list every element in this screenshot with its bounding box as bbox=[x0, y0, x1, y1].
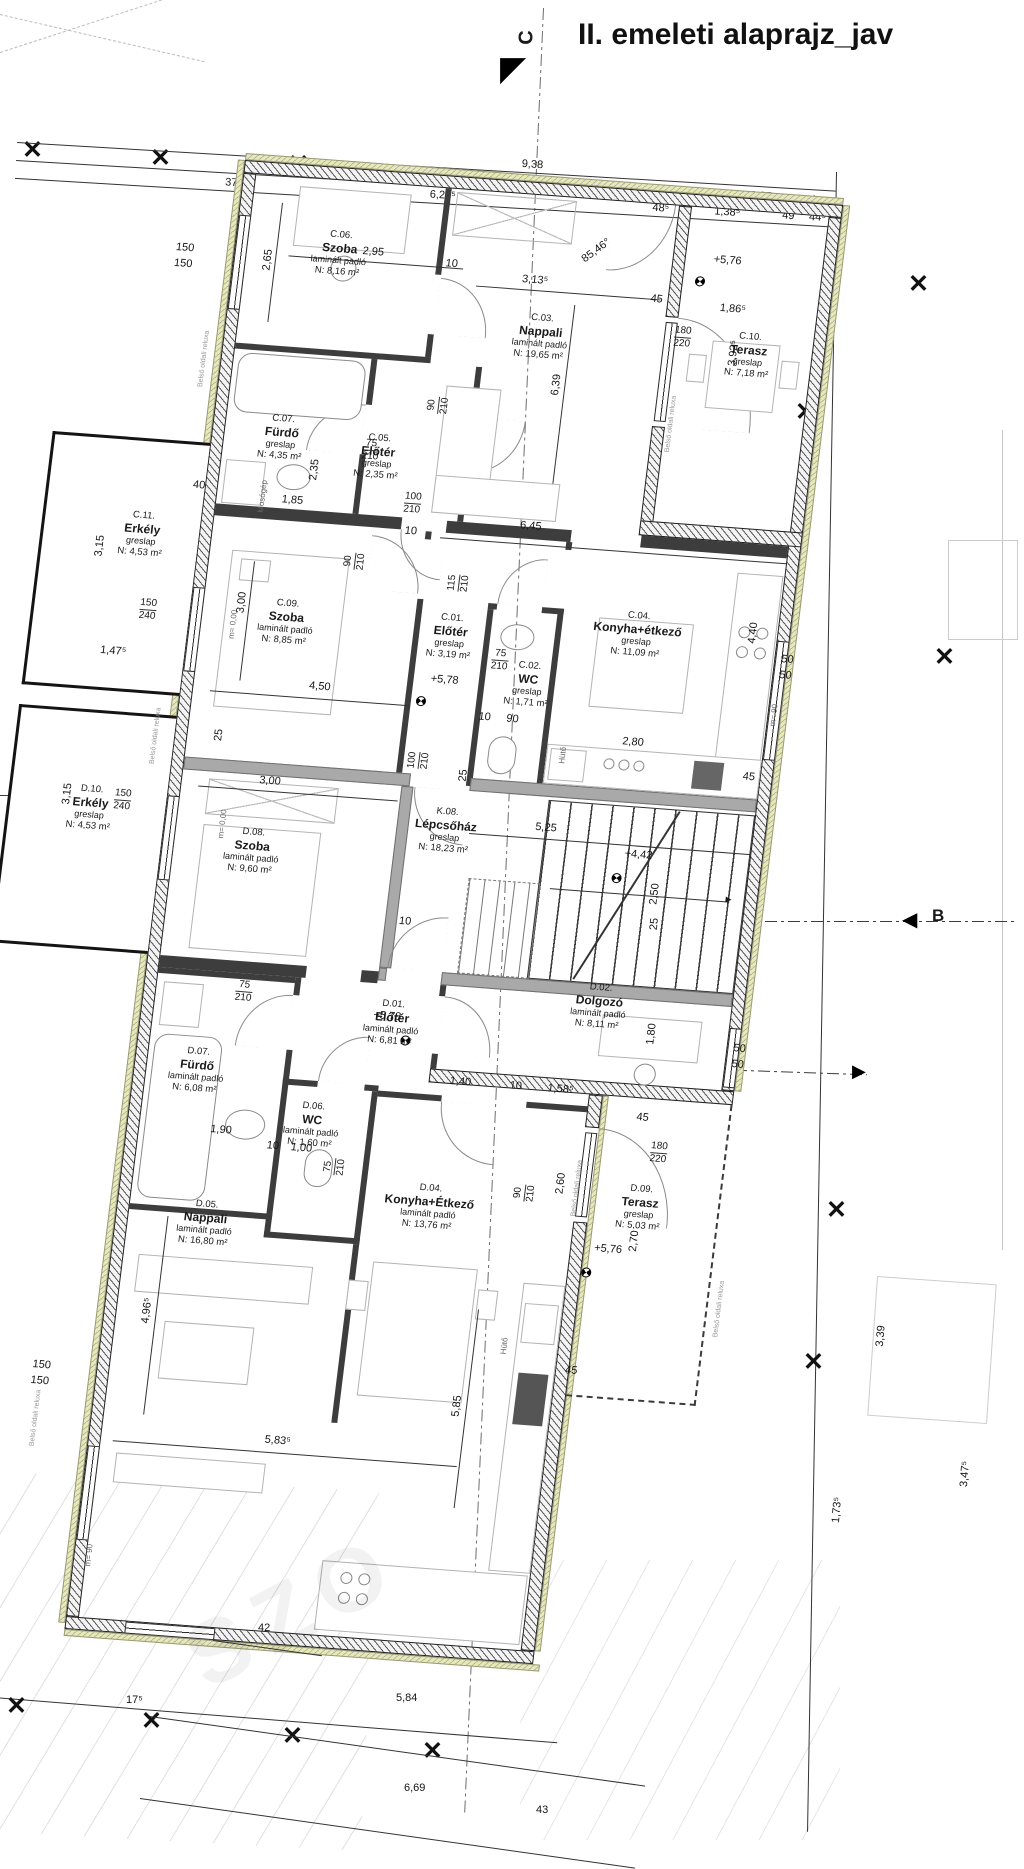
grid-cross-icon: ✕ bbox=[141, 1709, 162, 1734]
dim-label: 150 bbox=[175, 241, 195, 254]
dim-label: 1,40 bbox=[449, 1075, 472, 1089]
grid-cross-icon: ✕ bbox=[803, 1350, 824, 1375]
dim-label: 45 bbox=[636, 1111, 650, 1124]
dim-label: 25 bbox=[648, 917, 661, 930]
appliance-label: Hütő bbox=[499, 1337, 510, 1354]
door-dim: 150240 bbox=[113, 787, 133, 813]
dim-label: 17⁵ bbox=[126, 1694, 143, 1706]
dim-label: 1,73⁵ bbox=[830, 1497, 844, 1524]
dim-label: 1,90 bbox=[210, 1123, 233, 1137]
furniture-chair bbox=[475, 1289, 499, 1320]
floorplan-canvas: { "title": "II. emeleti alaprajz_jav", "… bbox=[0, 0, 1024, 1820]
room-label-d01: D.01.Előtér laminált padlóN: 6,81 m² bbox=[334, 995, 450, 1052]
level-label: +5,78 bbox=[430, 673, 459, 687]
dim-label: 1,47⁵ bbox=[100, 644, 127, 658]
furniture-sink bbox=[691, 761, 724, 791]
dim-label: 5,25 bbox=[535, 821, 558, 835]
wall-partition bbox=[360, 970, 378, 983]
wall-partition bbox=[264, 1231, 360, 1244]
dim-label: 90 bbox=[506, 713, 520, 726]
section-marker-c-label: C bbox=[516, 30, 539, 44]
wall-d02-terrace-step bbox=[428, 1068, 734, 1105]
stairs bbox=[527, 800, 755, 994]
dim-label: 1,85 bbox=[281, 493, 304, 507]
dim-label: 5,85 bbox=[450, 1395, 465, 1417]
dim-label: 45 bbox=[564, 1364, 578, 1377]
level-label: +5,76 bbox=[713, 253, 742, 267]
level-label: +5,76 bbox=[594, 1242, 623, 1256]
note-reluxa: Belső oldali reluxa bbox=[29, 1390, 43, 1447]
dim-label: 3,47⁵ bbox=[958, 1461, 972, 1488]
door-dim: 100210 bbox=[403, 491, 423, 517]
dim-label: 2,95 bbox=[362, 245, 385, 259]
door-arc bbox=[497, 556, 548, 607]
dim-label: 3,39 bbox=[874, 1325, 888, 1347]
stairs-walk-arrow-icon: ► bbox=[723, 894, 734, 906]
level-marker-icon bbox=[693, 274, 707, 288]
dim-label: 4,50 bbox=[308, 680, 331, 694]
axis-marker-b-triangle-icon: ◀ bbox=[902, 910, 917, 930]
room-label-c04: C.04.Konyha+étkező greslapN: 11,09 m² bbox=[572, 606, 703, 664]
dim-label: 1,58⁵ bbox=[547, 1082, 574, 1096]
dim-label: 1,00 bbox=[290, 1141, 313, 1155]
dim-label: 5,83⁵ bbox=[264, 1434, 291, 1448]
furniture-tv-bench bbox=[113, 1453, 266, 1494]
wall-stair-band-low bbox=[378, 967, 388, 981]
axis-marker-bottomright-triangle-icon: ▶ bbox=[852, 1062, 866, 1080]
wall-partition bbox=[439, 985, 446, 996]
grid-cross-icon: ✕ bbox=[422, 1739, 443, 1764]
door-dim: 150240 bbox=[138, 597, 158, 623]
wall-partition bbox=[331, 1244, 359, 1423]
floorplan: ► bbox=[64, 160, 843, 1674]
dim-label: 50 bbox=[733, 1042, 747, 1055]
furniture-fridge bbox=[520, 1303, 559, 1345]
furniture-toilet bbox=[486, 735, 519, 775]
room-label-d04: D.04.Konyha+Étkező laminált padlóN: 13,7… bbox=[363, 1178, 494, 1236]
dim-label: 25 bbox=[212, 728, 225, 741]
dim-label: 2,80 bbox=[622, 735, 645, 749]
dim-label: 3,00 bbox=[259, 774, 282, 788]
dim-label: 50 bbox=[779, 669, 793, 682]
wall-partition bbox=[430, 1054, 438, 1069]
room-label-k08: K.08.Lépcsőház greslapN: 18,23 m² bbox=[388, 802, 504, 859]
dim-label: 40 bbox=[192, 479, 206, 492]
dim-label: 43 bbox=[536, 1804, 548, 1816]
dim-label: 50 bbox=[731, 1058, 745, 1071]
wall-partition bbox=[214, 503, 402, 529]
room-label-c03: C.03.Nappali laminált padlóN: 19,65 m² bbox=[482, 309, 598, 366]
room-label-d05: D.05.Nappali laminált padlóN: 16,80 m² bbox=[147, 1195, 263, 1252]
grid-cross-icon: ✕ bbox=[934, 645, 955, 670]
furniture-sink bbox=[512, 1373, 548, 1427]
dim-label: 150 bbox=[32, 1358, 52, 1371]
dim-line bbox=[476, 286, 661, 301]
furniture-table bbox=[357, 1261, 478, 1403]
door-arc bbox=[434, 1101, 501, 1165]
context-building-right bbox=[948, 540, 1018, 640]
door-dim: 75210 bbox=[234, 979, 254, 1005]
dim-label: 150 bbox=[173, 257, 193, 270]
dim-label: 45 bbox=[742, 770, 756, 783]
room-label-d09: D.09.Terasz greslapN: 5,03 m² bbox=[587, 1180, 693, 1236]
furniture-washing-machine bbox=[159, 981, 204, 1028]
furniture-sofa bbox=[431, 475, 560, 522]
axis-marker-b-label: B bbox=[932, 906, 944, 926]
furniture-chair bbox=[345, 1280, 369, 1311]
furniture-chair bbox=[632, 1063, 657, 1086]
wall-partition bbox=[377, 1091, 442, 1102]
dim-label: 10 bbox=[478, 711, 492, 724]
dim-label: 10 bbox=[404, 525, 418, 538]
room-label-d07: D.07.Fürdő laminált padlóN: 6,08 m² bbox=[139, 1042, 255, 1099]
level-label: +4,42 bbox=[624, 848, 653, 862]
level-marker-icon bbox=[414, 694, 428, 708]
dim-label: 2,60 bbox=[553, 1172, 568, 1194]
dim-label: 10 bbox=[509, 1079, 523, 1092]
dim-label: 6,69 bbox=[404, 1782, 425, 1794]
section-marker-c-triangle-icon: ◤ bbox=[500, 52, 526, 86]
door-dim: 75210 bbox=[490, 647, 510, 673]
wall-partition bbox=[425, 334, 434, 357]
dim-label: 10 bbox=[266, 1139, 280, 1152]
room-label-d02: D.02.Dolgozó laminált padlóN: 8,11 m² bbox=[541, 978, 657, 1035]
door-arc bbox=[606, 201, 676, 275]
grid-cross-icon: ✕ bbox=[908, 272, 929, 297]
door-dim: 75210 bbox=[361, 437, 381, 463]
dim-label: 4,96⁵ bbox=[139, 1297, 154, 1324]
door-dim: 180220 bbox=[673, 325, 693, 351]
furniture-washbasin bbox=[499, 623, 536, 651]
dim-label: 150 bbox=[30, 1374, 50, 1387]
door-dim: 90210 bbox=[425, 396, 452, 414]
room-label-c10: C.10.Terasz greslapN: 7,18 m² bbox=[695, 328, 801, 384]
dim-label: 2,65 bbox=[260, 249, 275, 271]
furniture-coffee-table bbox=[158, 1321, 255, 1385]
door-dim: 90210 bbox=[342, 552, 369, 570]
door-dim: 180220 bbox=[649, 1140, 669, 1166]
context-dashed-topleft-1 bbox=[0, 14, 205, 62]
dim-label: 45 bbox=[650, 293, 664, 306]
dim-label: 3,13⁵ bbox=[521, 273, 548, 287]
dim-label: 1,86⁵ bbox=[719, 302, 746, 316]
door-dim: 115210 bbox=[445, 574, 472, 592]
grid-cross-icon: ✕ bbox=[826, 1198, 847, 1223]
context-building-right-low bbox=[867, 1276, 996, 1424]
stairs-dashed bbox=[457, 878, 540, 979]
dim-label: 50 bbox=[781, 653, 795, 666]
dim-label: 5,84 bbox=[396, 1692, 417, 1704]
door-dim: 90210 bbox=[511, 1184, 538, 1202]
axis-line-bottom-right bbox=[735, 1070, 867, 1076]
level-label: m= 90 bbox=[83, 1544, 95, 1567]
dim-label: 10 bbox=[398, 915, 412, 928]
door-dim: 75210 bbox=[321, 1158, 348, 1176]
dim-label: 10 bbox=[445, 257, 459, 270]
wall-terrace-c10-left bbox=[639, 426, 665, 534]
note-reluxa: Belső oldali reluxa bbox=[197, 330, 211, 387]
axis-line-b bbox=[742, 921, 1018, 922]
grid-cross-icon: ✕ bbox=[6, 1694, 27, 1719]
room-label-c07: C.07.Fürdő greslapN: 4,35 m² bbox=[224, 409, 340, 466]
dim-label: 6,45 bbox=[519, 519, 542, 533]
dim-label: 6,39 bbox=[549, 374, 564, 396]
room-label-d08: D.08.Szoba laminált padlóN: 9,60 m² bbox=[194, 823, 310, 880]
wall-partition bbox=[366, 359, 378, 405]
level-label: +5,78 bbox=[373, 1009, 402, 1023]
drawing-title: II. emeleti alaprajz_jav bbox=[578, 18, 893, 52]
note-reluxa: Belső oldali reluxa bbox=[712, 1281, 726, 1338]
dim-label: 2,35 bbox=[307, 459, 322, 481]
door-dim: 100210 bbox=[406, 751, 433, 769]
furniture-wardrobe bbox=[452, 192, 577, 245]
wall-partition bbox=[526, 1102, 588, 1113]
dim-label: 25 bbox=[457, 769, 470, 782]
